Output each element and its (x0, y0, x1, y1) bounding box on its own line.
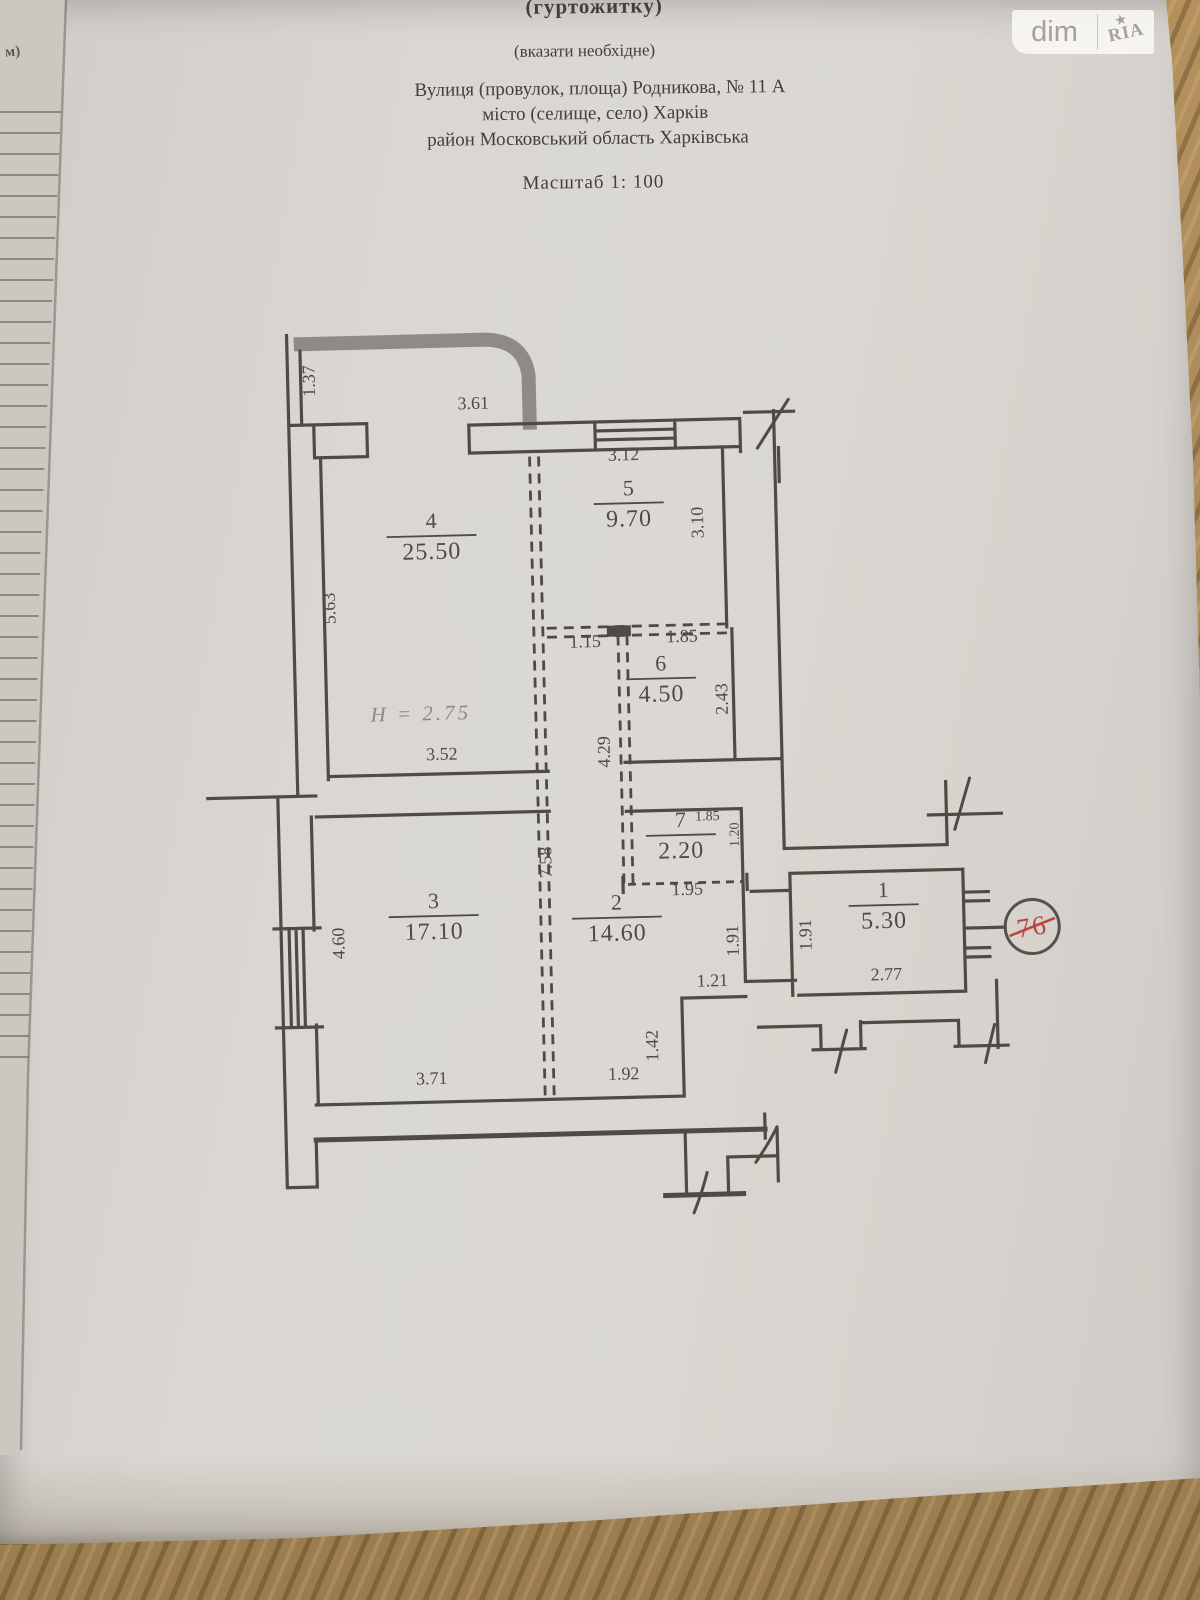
room-number: 1 (877, 877, 889, 902)
dimension-label: 7.58 (535, 846, 556, 878)
dimension-label: 1.15 (569, 631, 601, 652)
dimension-label: 4.60 (328, 927, 349, 959)
room-underline (849, 904, 919, 906)
curved-exterior-wall (294, 339, 530, 436)
room-underline (572, 917, 662, 919)
dimension-label: 1.92 (608, 1063, 640, 1084)
room-area: 5.30 (861, 908, 908, 935)
dimension-label: 1.91 (722, 925, 743, 957)
partition-dashed-vertical-main (530, 456, 555, 1097)
page-edge-seam (21, 0, 66, 1450)
room-area: 25.50 (402, 538, 462, 565)
ceiling-height-note: Н = 2.75 (369, 700, 471, 726)
room-area: 9.70 (606, 506, 653, 533)
dimension-label: 1.42 (642, 1030, 663, 1062)
room-area: 2.20 (658, 837, 705, 864)
dimension-label: 3.52 (426, 743, 458, 764)
room-underline (594, 502, 664, 504)
dimension-label: 4.29 (593, 736, 614, 768)
room-label-3: 317.10 (388, 887, 479, 946)
room-number: 7 (675, 807, 687, 832)
room-underline (389, 915, 479, 917)
dimension-label: 3.71 (416, 1068, 448, 1089)
dimension-label: 3.61 (457, 393, 489, 414)
apartment-number-stamp: 76 (1005, 899, 1060, 954)
dimension-label: 1.21 (696, 970, 728, 991)
room-underline (626, 678, 696, 680)
room-label-5: 59.70 (593, 474, 664, 533)
room-number: 4 (425, 508, 437, 533)
room-number: 6 (655, 650, 667, 675)
room-number: 5 (623, 475, 635, 500)
dimension-label: 2.77 (870, 964, 902, 985)
room-label-6: 64.50 (625, 650, 696, 709)
room-label-2: 214.60 (571, 889, 662, 948)
room-underline (646, 834, 716, 836)
dimension-label: 5.63 (319, 593, 340, 625)
room-number: 3 (428, 888, 440, 913)
room-label-4: 425.50 (386, 507, 477, 566)
dimension-label: 2.43 (711, 683, 732, 715)
dimension-label: 1.85 (666, 626, 698, 647)
door-sill-block (607, 625, 631, 637)
dimension-label: 1.91 (795, 919, 816, 951)
room-area: 4.50 (638, 681, 685, 708)
room-label-1: 15.30 (848, 876, 919, 935)
dimension-label: 1.37 (298, 365, 319, 397)
dimension-label: 1.20 (728, 822, 744, 847)
partition-dashed-vertical-small (618, 635, 633, 884)
room-number: 2 (611, 890, 623, 915)
plan-group: 76 Н = 2.75 425.5059.7064.5072.20317.102… (197, 317, 1066, 1224)
dimension-label: 1.85 (695, 809, 720, 825)
room-area: 14.60 (587, 920, 647, 947)
floor-plan-drawing: 76 Н = 2.75 425.5059.7064.5072.20317.102… (0, 0, 1200, 1600)
dimension-label: 3.10 (687, 507, 708, 539)
walls-exterior-bottom (316, 1129, 766, 1204)
room-area: 17.10 (404, 918, 464, 945)
dimension-label: 3.12 (608, 444, 640, 465)
room-underline (386, 535, 476, 537)
dimension-label: 1.95 (671, 879, 703, 900)
photo-of-floor-plan-document: { "document": { "type_line": "(гуртожитк… (0, 0, 1200, 1600)
